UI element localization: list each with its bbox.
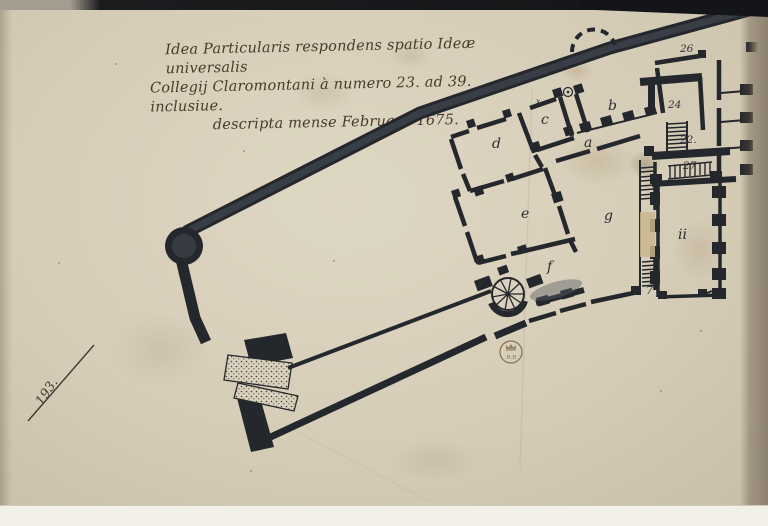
room-label-b: b [608, 98, 617, 114]
number-label-24: 24 [667, 99, 681, 111]
number-label-22: 22. [679, 134, 697, 146]
library-stamp: B.R [500, 341, 522, 363]
number-label-26: 26 [679, 43, 694, 55]
x-mark: x [536, 97, 541, 106]
landing-wash [640, 212, 655, 257]
stamp-letters: B.R [507, 355, 518, 361]
west-wall [181, 259, 206, 342]
stamp-crown-icon [506, 344, 516, 349]
rampart-wall [186, 5, 767, 232]
bastion-gate [224, 333, 298, 452]
paper-left-edge-shadow [0, 0, 12, 505]
room-label-c: c [541, 112, 549, 128]
room-label-ii: ii [678, 227, 687, 243]
floor-plan-drawing: d c x b a e g f ii 7 26 24 22. 27 [0, 0, 768, 505]
manuscript-paper: Idea Particularis respondens spatio Ideæ… [0, 0, 768, 505]
room-label-a: a [584, 135, 592, 151]
paper-right-edge-shadow [740, 0, 768, 505]
mount-strip: V.R.724. Clermont. Ferrand 1675 M133652 [0, 505, 768, 526]
folio-annotation: 193. [28, 345, 94, 421]
room-label-f: f [546, 259, 555, 275]
room-label-7: 7 [646, 284, 653, 297]
scanned-document-viewport: Idea Particularis respondens spatio Ideæ… [0, 0, 768, 526]
room-label-d: d [492, 136, 501, 152]
enclosure-walls [262, 291, 526, 441]
spiral-staircase [491, 278, 525, 314]
number-label-27: 27 [682, 160, 697, 172]
room-label-g: g [604, 208, 613, 224]
room-label-e: e [521, 206, 529, 222]
folio-number: 193. [33, 376, 62, 408]
room-walls [451, 56, 745, 321]
well-symbol [564, 88, 573, 97]
